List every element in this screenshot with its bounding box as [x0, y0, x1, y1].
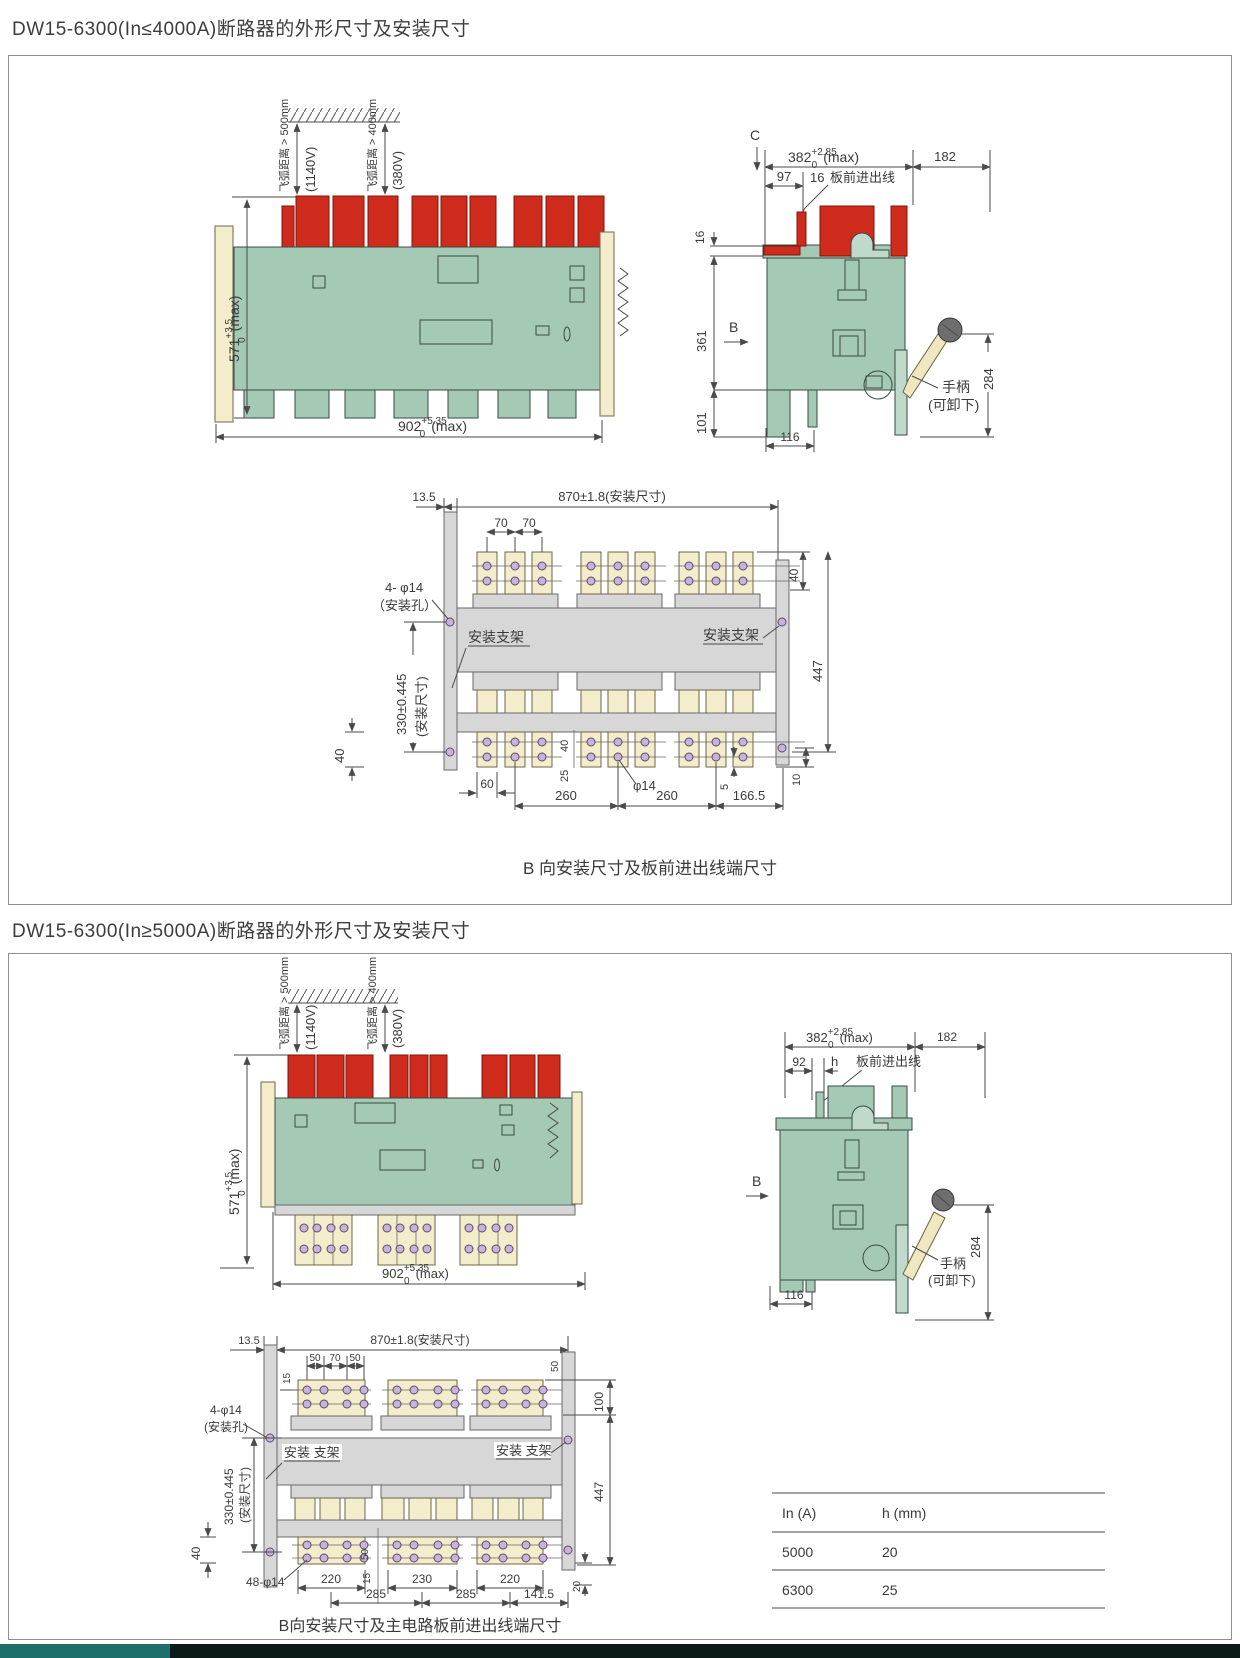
arc-distance-500-label: 飞弧距离 > 500mm — [277, 99, 291, 192]
mount-holes-label: 4- φ14 — [385, 580, 423, 595]
section1-drawing: 飞弧距离 > 500mm (1140V) 飞弧距离 > 400mm (380V)… — [9, 56, 1229, 902]
arc-voltage-380-label: (380V) — [390, 151, 405, 190]
arc-distance-400-label: 飞弧距离 > 400mm — [365, 957, 379, 1050]
dim-16-left-label: 16 — [693, 230, 707, 244]
mount-holes-note-label: (安装孔) — [204, 1419, 248, 1434]
dim-50-right-label: 50 — [550, 1360, 561, 1372]
section1-title: DW15-6300(In≤4000A)断路器的外形尺寸及安装尺寸 — [12, 14, 470, 41]
dim-25-label: 25 — [559, 770, 571, 782]
dim-60-label: 60 — [480, 777, 494, 791]
dim-70a-label: 70 — [494, 516, 508, 530]
mount-holes-label: 4-φ14 — [210, 1403, 242, 1417]
view-c-label: C — [750, 127, 760, 143]
dim-285b-label: 285 — [456, 1587, 476, 1601]
section2-caption: B向安装尺寸及主电路板前进出线端尺寸 — [279, 1617, 562, 1635]
dim-330-note-label: (安装尺寸) — [414, 676, 429, 737]
table-header-in: In (A) — [782, 1505, 816, 1521]
dim-92-label: 92 — [792, 1055, 806, 1069]
dim-40-mid-label: 40 — [559, 740, 571, 752]
table-cell: 5000 — [782, 1544, 813, 1560]
dim-50a-label: 50 — [309, 1353, 321, 1364]
dim-116-label: 116 — [780, 430, 799, 444]
dim-166-5-label: 166.5 — [733, 788, 766, 803]
front-wiring-label: 板前进出线 — [856, 1054, 921, 1069]
dim-361-label: 361 — [694, 330, 709, 352]
dim-50-mid-label: 50 — [360, 1548, 371, 1560]
phi14-label: φ14 — [633, 778, 656, 793]
dim-330-label: 330±0.445 — [394, 674, 409, 735]
section2-panel: 飞弧距离 > 500mm (1140V) 飞弧距离 > 400mm (380V)… — [8, 953, 1232, 1640]
dim-870-label: 870±1.8(安装尺寸) — [558, 489, 666, 504]
table-cell: 25 — [882, 1582, 898, 1598]
mount-holes-note-label: （安装孔） — [372, 598, 437, 613]
dim-70-label: 70 — [329, 1353, 341, 1364]
side-view: 382+2.850(max) 182 92 h 板前进出线 B 116 284 … — [746, 1027, 994, 1320]
dim-182-label: 182 — [934, 149, 956, 164]
handle-label: 手柄 — [940, 1256, 966, 1271]
dim-230-label: 230 — [412, 1572, 432, 1586]
dim-260a-label: 260 — [555, 788, 577, 803]
arc-distance-500-label: 飞弧距离 > 500mm — [277, 957, 291, 1050]
dim-48-phi14-label: 48-φ14 — [246, 1575, 285, 1589]
b-install-view: 13.5 870±1.8(安装尺寸) 50 70 50 15 50 100 4-… — [189, 1332, 616, 1608]
section2-drawing: 飞弧距离 > 500mm (1140V) 飞弧距离 > 400mm (380V)… — [9, 954, 1229, 1637]
dim-70b-label: 70 — [522, 516, 536, 530]
dim-870-label: 870±1.8(安装尺寸) — [370, 1332, 469, 1347]
view-b-label: B — [752, 1173, 761, 1189]
catalog-page: DW15-6300(In≤4000A)断路器的外形尺寸及安装尺寸 飞弧距离 > … — [0, 0, 1240, 1658]
side-view: C 382+2.850(max) 182 97 16 板前进出线 16 B 36… — [693, 127, 996, 452]
table-cell: 6300 — [782, 1582, 813, 1598]
dim-285a-label: 285 — [366, 1587, 386, 1601]
dim-182-label: 182 — [937, 1030, 957, 1044]
dim-40-left-label: 40 — [332, 749, 347, 763]
dim-5-label: 5 — [719, 784, 731, 790]
dim-13-5-label: 13.5 — [238, 1335, 259, 1347]
dim-330-label: 330±0.445 — [222, 1468, 236, 1525]
dim-101-label: 101 — [694, 412, 709, 434]
front-view: 飞弧距离 > 500mm (1140V) 飞弧距离 > 400mm (380V)… — [215, 99, 628, 443]
b-install-view: 13.5 870±1.8(安装尺寸) 70 70 4- φ14 （安装孔） 安装… — [332, 489, 836, 810]
view-b-label: B — [729, 319, 738, 335]
arc-voltage-1140-label: (1140V) — [303, 147, 318, 192]
footer-accent — [0, 1644, 170, 1658]
page-footer-bar — [0, 1644, 1240, 1658]
dim-220a-label: 220 — [321, 1572, 341, 1586]
dim-15-label: 15 — [282, 1372, 293, 1384]
handle-note-label: (可卸下) — [928, 397, 979, 413]
dim-260b-label: 260 — [656, 788, 678, 803]
dim-447-label: 447 — [810, 660, 825, 682]
spec-table: In (A) h (mm) 5000 20 6300 25 — [772, 1493, 1105, 1608]
arc-distance-400-label: 飞弧距离 > 400mm — [365, 99, 379, 192]
dim-10-label: 10 — [791, 774, 803, 786]
dim-40-label: 40 — [189, 1546, 203, 1560]
bracket-left-label: 安装支架 — [468, 629, 524, 645]
dim-13-5-label: 13.5 — [412, 490, 436, 504]
height-dim-label: 571+3.50(max) — [224, 1149, 248, 1215]
section2-title: DW15-6300(In≥5000A)断路器的外形尺寸及安装尺寸 — [12, 916, 470, 943]
dim-50b-label: 50 — [349, 1353, 361, 1364]
dim-220b-label: 220 — [500, 1572, 520, 1586]
front-wiring-label: 板前进出线 — [830, 170, 895, 185]
dim-h-label: h — [831, 1054, 838, 1069]
dim-330-note-label: (安装尺寸) — [237, 1467, 252, 1523]
dim-16-top-label: 16 — [810, 170, 824, 185]
dim-141-5-label: 141.5 — [524, 1587, 554, 1601]
arc-voltage-380-label: (380V) — [390, 1009, 405, 1048]
table-cell: 20 — [882, 1544, 898, 1560]
dim-447-label: 447 — [592, 1482, 606, 1502]
dim-100-label: 100 — [592, 1392, 606, 1412]
dim-284-label: 284 — [968, 1236, 983, 1258]
width-dim-label: 902+5.350(max) — [382, 1263, 449, 1287]
bracket-right-label: 安装支架 — [703, 627, 759, 643]
table-header-h: h (mm) — [882, 1505, 926, 1521]
section1-caption: B 向安装尺寸及板前进出线端尺寸 — [523, 859, 777, 878]
dim-97-label: 97 — [777, 169, 791, 184]
dim-15-mid-label: 15 — [362, 1572, 373, 1584]
bracket-right-label: 安装 支架 — [496, 1443, 552, 1458]
dim-20-label: 20 — [572, 1580, 583, 1592]
dim-284-label: 284 — [981, 368, 996, 390]
handle-label: 手柄 — [942, 379, 970, 395]
width-dim-label: 902+5.350(max) — [398, 416, 467, 440]
dim-40-right-label: 40 — [787, 568, 801, 582]
bracket-left-label: 安装 支架 — [284, 1445, 340, 1460]
handle-note-label: (可卸下) — [928, 1273, 976, 1288]
front-view: 飞弧距离 > 500mm (1140V) 飞弧距离 > 400mm (380V)… — [220, 957, 585, 1290]
arc-voltage-1140-label: (1140V) — [303, 1005, 318, 1050]
dim-116-label: 116 — [784, 1288, 803, 1302]
section1-panel: 飞弧距离 > 500mm (1140V) 飞弧距离 > 400mm (380V)… — [8, 55, 1232, 905]
